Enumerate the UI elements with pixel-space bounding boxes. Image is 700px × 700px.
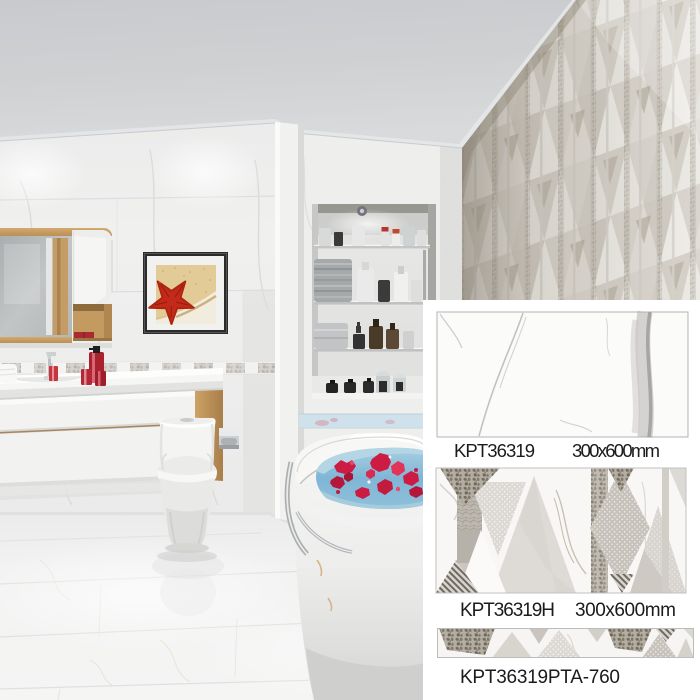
svg-text:KPT36319PTA-760: KPT36319PTA-760 [460, 667, 620, 688]
svg-text:KPT36319H: KPT36319H [460, 600, 555, 621]
svg-text:KPT36319: KPT36319 [454, 440, 535, 461]
svg-text:300x600mm: 300x600mm [575, 600, 676, 621]
svg-text:300x600mm: 300x600mm [572, 440, 660, 461]
